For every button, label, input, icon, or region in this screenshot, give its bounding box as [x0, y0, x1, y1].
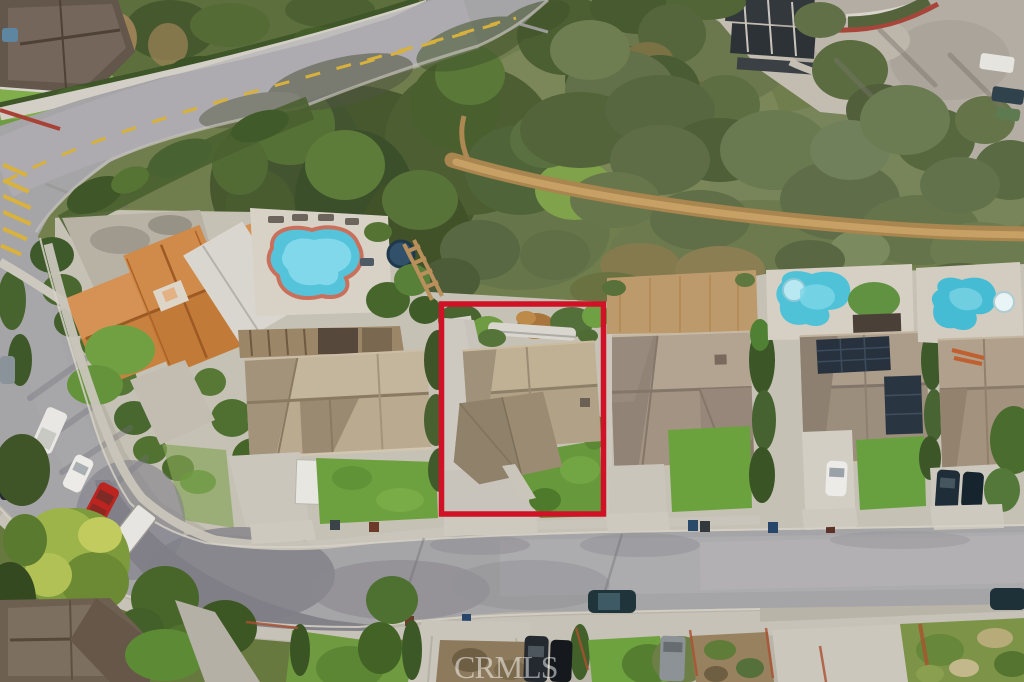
- svg-text:CRMLS: CRMLS: [454, 649, 557, 682]
